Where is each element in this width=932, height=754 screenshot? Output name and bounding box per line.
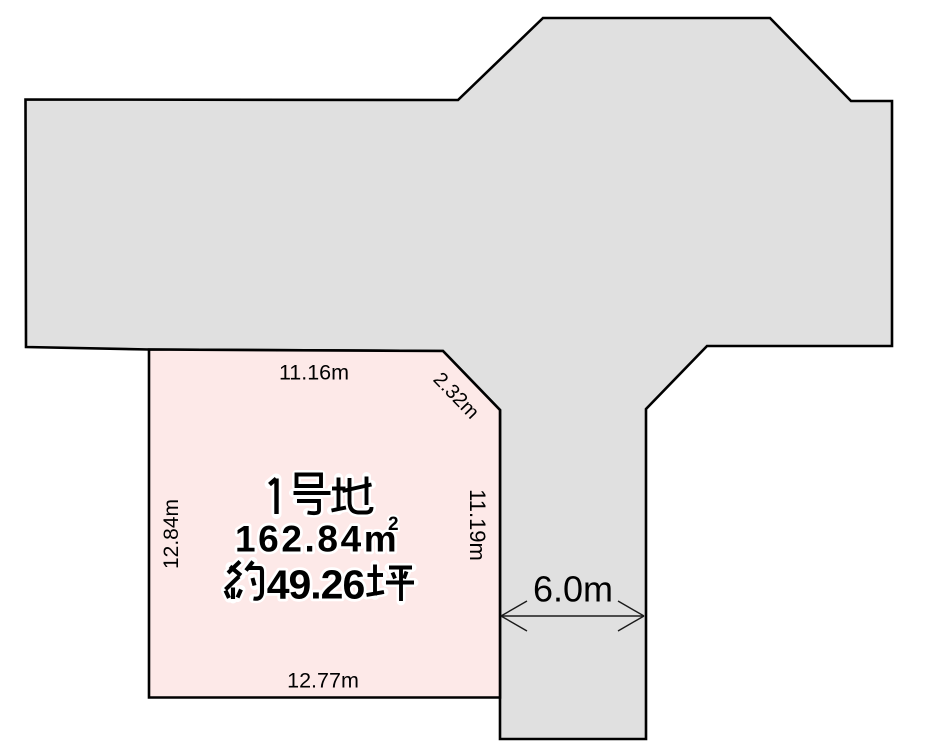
- svg-text:12.84m: 12.84m: [160, 499, 183, 569]
- svg-text:162.84m: 162.84m: [235, 519, 399, 560]
- svg-text:6.0m: 6.0m: [533, 569, 613, 610]
- svg-text:11.19m: 11.19m: [465, 489, 490, 561]
- svg-text:12.77m: 12.77m: [287, 669, 359, 693]
- svg-text:11.16m: 11.16m: [279, 361, 349, 385]
- svg-text:49.26: 49.26: [267, 562, 365, 608]
- svg-text:2: 2: [388, 514, 399, 535]
